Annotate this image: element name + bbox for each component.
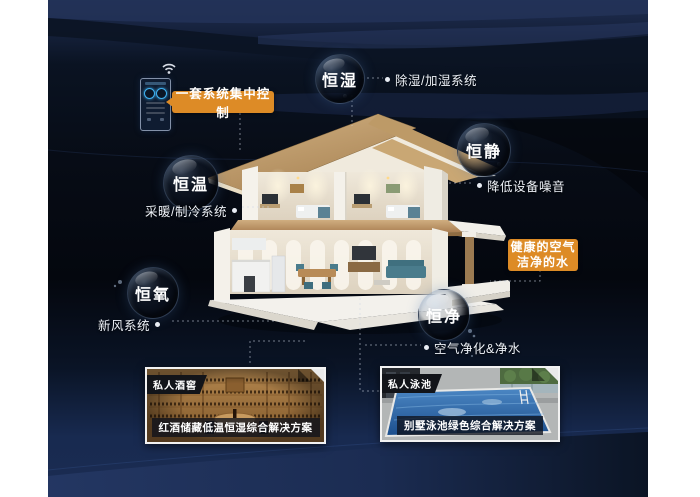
panel-button xyxy=(147,118,151,121)
bubble-label: 恒静 xyxy=(466,138,502,162)
note-label: 新风系统 xyxy=(98,315,150,334)
card-fold-corner xyxy=(545,368,558,381)
card-fold-shadow xyxy=(532,368,545,381)
note-dot xyxy=(385,77,390,82)
panel-knob-left xyxy=(144,88,155,99)
bubble-label: 恒净 xyxy=(426,303,462,327)
pool-tag: 私人泳池 xyxy=(382,374,442,393)
bubble-label: 恒湿 xyxy=(322,67,358,91)
bubble-constant-oxygen: 恒氧 xyxy=(127,267,179,319)
panel-button xyxy=(160,118,164,121)
central-control-badge: 一套系统集中控制 xyxy=(172,91,274,113)
wine-cellar-tag: 私人酒窖 xyxy=(147,375,207,394)
note-reduce-noise: 降低设备噪音 xyxy=(477,176,565,195)
wine-cellar-card: 私人酒窖 红酒储藏低温恒湿综合解决方案 xyxy=(145,367,326,444)
note-dot xyxy=(477,183,482,188)
bubble-label: 恒氧 xyxy=(135,281,171,305)
infographic-canvas: 一套系统集中控制 健康的空气 洁净的水 恒湿 恒静 恒温 恒氧 恒净 除湿/加湿… xyxy=(48,0,648,497)
note-label: 除湿/加湿系统 xyxy=(395,70,477,89)
note-air-water-purification: 空气净化&净水 xyxy=(424,338,521,357)
air-water-badge-line1: 健康的空气 xyxy=(510,240,575,255)
note-label: 采暖/制冷系统 xyxy=(145,201,227,220)
note-fresh-air-system: 新风系统 xyxy=(98,315,160,334)
wifi-icon xyxy=(161,61,177,75)
card-fold-corner xyxy=(311,369,324,382)
note-dot xyxy=(155,322,160,327)
note-dot xyxy=(424,345,429,350)
central-control-badge-label: 一套系统集中控制 xyxy=(172,83,274,121)
bubble-constant-quiet: 恒静 xyxy=(457,123,511,177)
bubble-constant-humidity: 恒湿 xyxy=(315,54,365,104)
pool-caption: 别墅泳池绿色综合解决方案 xyxy=(397,416,543,435)
note-heating-cooling-system: 采暖/制冷系统 xyxy=(145,201,237,220)
note-dot xyxy=(232,208,237,213)
pool-card: 私人泳池 别墅泳池绿色综合解决方案 xyxy=(380,366,560,442)
panel-row-bar xyxy=(146,107,165,109)
wine-cellar-caption: 红酒储藏低温恒湿综合解决方案 xyxy=(152,418,320,437)
panel-row-bar xyxy=(146,102,165,104)
panel-header-bar xyxy=(145,82,166,85)
note-label: 降低设备噪音 xyxy=(487,176,565,195)
bubble-label: 恒温 xyxy=(173,171,209,195)
air-water-badge-line2: 洁净的水 xyxy=(517,255,569,270)
note-label: 空气净化&净水 xyxy=(434,338,521,357)
air-water-badge: 健康的空气 洁净的水 xyxy=(508,239,578,271)
bubble-constant-purity: 恒净 xyxy=(418,289,470,341)
note-dehumidify-system: 除湿/加湿系统 xyxy=(385,70,477,89)
panel-row-bar xyxy=(146,112,165,114)
card-fold-shadow xyxy=(298,369,311,382)
